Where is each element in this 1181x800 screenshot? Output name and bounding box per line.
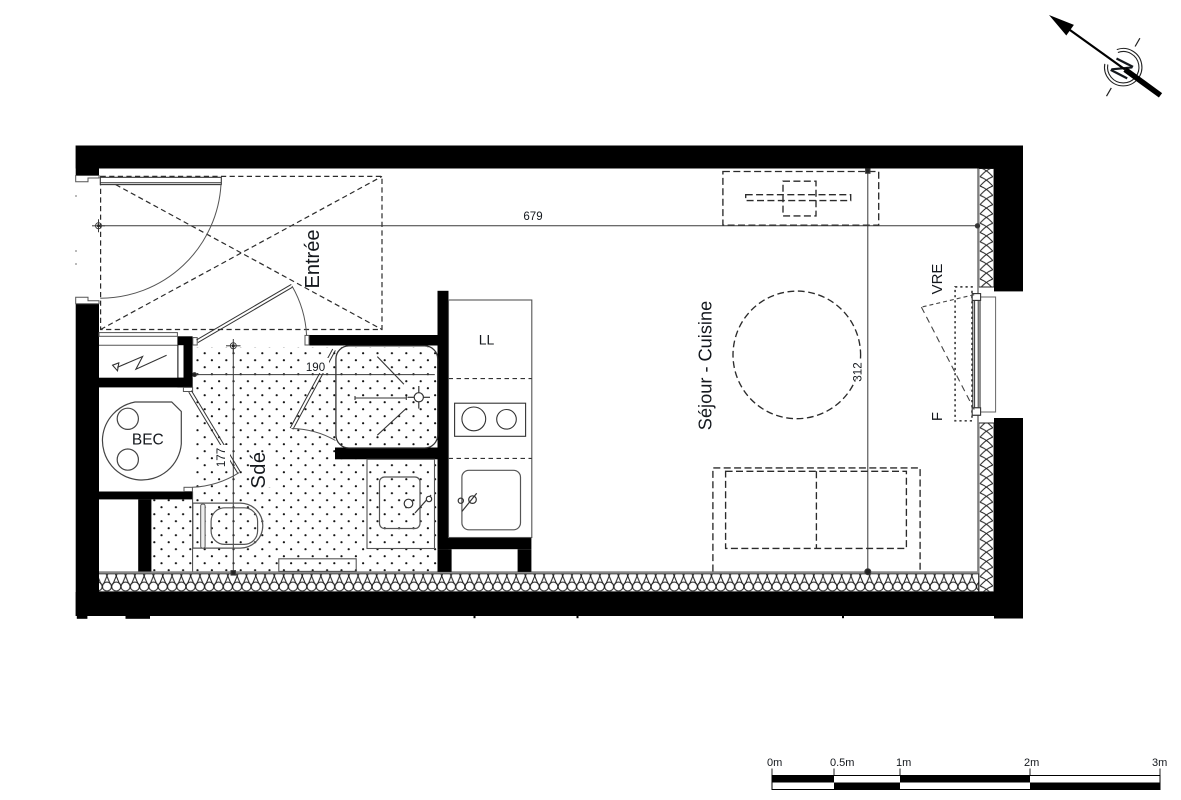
svg-text:0.5m: 0.5m [830, 757, 854, 769]
svg-text:679: 679 [523, 211, 542, 223]
svg-text:190: 190 [306, 362, 325, 374]
svg-text:F: F [929, 412, 946, 421]
svg-text:312: 312 [853, 362, 865, 381]
svg-text:Sdé: Sdé [248, 451, 270, 488]
svg-text:Entrée: Entrée [302, 230, 324, 289]
svg-text:2m: 2m [1024, 757, 1039, 769]
svg-text:177: 177 [216, 448, 228, 467]
svg-text:VRE: VRE [929, 264, 946, 295]
svg-text:LL: LL [479, 332, 495, 348]
svg-text:0m: 0m [767, 757, 782, 769]
svg-text:3m: 3m [1152, 757, 1167, 769]
svg-text:BEC: BEC [132, 432, 164, 449]
svg-text:Séjour - Cuisine: Séjour - Cuisine [696, 301, 716, 430]
svg-text:1m: 1m [896, 757, 911, 769]
